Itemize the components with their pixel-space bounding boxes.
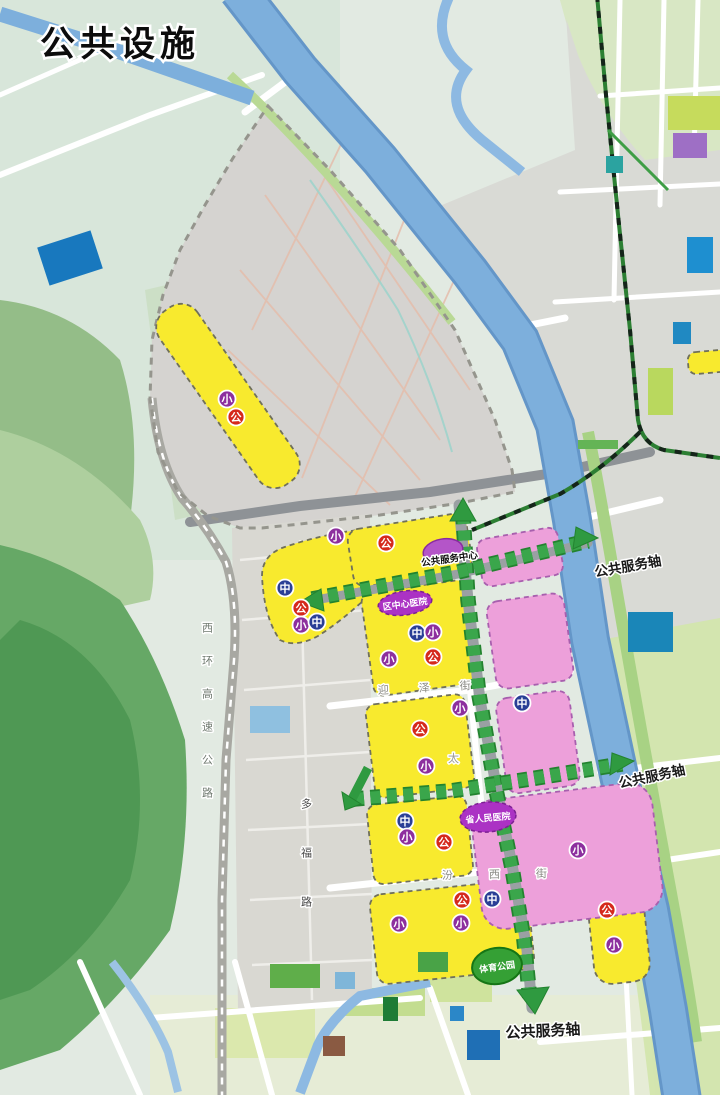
- primary-badge-char: 小: [572, 843, 584, 857]
- primary-badge-char: 小: [330, 529, 342, 543]
- facility-badge-public: 公: [436, 834, 453, 851]
- middle-badge-char: 中: [280, 581, 291, 595]
- facility-badge-primary: 小: [570, 842, 587, 859]
- zone-yellow-east-pill: [687, 349, 720, 374]
- facility-badge-primary: 小: [453, 915, 470, 932]
- facility-badge-middle: 中: [309, 614, 326, 631]
- fenxi-street-label: 汾西街: [442, 866, 583, 882]
- blue-block: [673, 322, 691, 344]
- page-title: 公共设施: [40, 25, 200, 65]
- facility-badge-middle: 中: [514, 695, 531, 712]
- facility-badge-middle: 中: [397, 813, 414, 830]
- middle-badge-char: 中: [400, 814, 411, 828]
- middle-badge-char: 中: [412, 626, 423, 640]
- facility-badge-public: 公: [228, 409, 245, 426]
- facility-badge-public: 公: [425, 649, 442, 666]
- facility-badge-primary: 小: [219, 391, 236, 408]
- public-badge-char: 公: [296, 602, 307, 615]
- field-patch: [215, 1008, 315, 1058]
- facility-badge-primary: 小: [425, 624, 442, 641]
- public-badge-char: 公: [231, 411, 242, 424]
- primary-badge-char: 小: [454, 701, 466, 715]
- green-block: [270, 964, 320, 988]
- blue-block: [467, 1030, 500, 1060]
- facility-badge-public: 公: [378, 535, 395, 552]
- blue-block: [250, 706, 290, 733]
- middle-badge-char: 中: [517, 696, 528, 710]
- primary-badge-char: 小: [221, 392, 233, 406]
- public-badge-char: 公: [457, 894, 468, 907]
- public-badge-char: 公: [428, 651, 439, 664]
- purple-block-ne: [673, 133, 707, 158]
- lime-block: [668, 96, 720, 130]
- blue-block: [335, 972, 355, 989]
- facility-badge-public: 公: [599, 902, 616, 919]
- facility-badge-public: 公: [293, 600, 310, 617]
- primary-badge-char: 小: [420, 759, 432, 773]
- green-block-dark: [383, 997, 398, 1021]
- public-badge-char: 公: [602, 904, 613, 917]
- facility-badge-primary: 小: [452, 700, 469, 717]
- blue-block: [687, 237, 713, 273]
- facility-badge-primary: 小: [381, 651, 398, 668]
- teal-block-big: [628, 612, 673, 652]
- blue-block: [450, 1006, 464, 1021]
- primary-badge-char: 小: [427, 625, 439, 639]
- facility-badge-primary: 小: [606, 937, 623, 954]
- vertical-street-char: 太: [448, 752, 459, 765]
- facility-badge-primary: 小: [293, 617, 310, 634]
- middle-badge-char: 中: [312, 615, 323, 629]
- primary-badge-char: 小: [383, 652, 395, 666]
- green-block: [418, 952, 448, 972]
- zone-pink-2: [485, 592, 574, 690]
- lime-block: [648, 368, 673, 415]
- public-badge-char: 公: [381, 537, 392, 550]
- facility-badge-primary: 小: [328, 528, 345, 545]
- facility-badge-primary: 小: [399, 829, 416, 846]
- facility-badge-public: 公: [412, 721, 429, 738]
- green-strip: [578, 440, 618, 449]
- planning-map-page: 小公小公中公小中中小小公小中公小中小公小公中小小公小 公共服务中心 区中心医院 …: [0, 0, 720, 1095]
- map-canvas: 小公小公中公小中中小小公小中公小中小公小公中小小公小 公共服务中心 区中心医院 …: [0, 0, 720, 1095]
- facility-badge-middle: 中: [409, 625, 426, 642]
- primary-badge-char: 小: [295, 618, 307, 632]
- duofu-road-label: 多福路: [300, 797, 313, 945]
- public-badge-char: 公: [415, 723, 426, 736]
- brown-block: [323, 1036, 345, 1056]
- facility-badge-middle: 中: [277, 580, 294, 597]
- middle-badge-char: 中: [487, 892, 498, 906]
- facility-badge-middle: 中: [484, 891, 501, 908]
- public-badge-char: 公: [439, 836, 450, 849]
- primary-badge-char: 小: [393, 917, 405, 931]
- facility-badge-primary: 小: [418, 758, 435, 775]
- expressway-label: 西环高速公路: [201, 622, 214, 820]
- primary-badge-char: 小: [455, 916, 467, 930]
- primary-badge-char: 小: [401, 830, 413, 844]
- facility-badge-public: 公: [454, 892, 471, 909]
- facility-badge-primary: 小: [391, 916, 408, 933]
- teal-block: [606, 156, 623, 173]
- primary-badge-char: 小: [608, 938, 620, 952]
